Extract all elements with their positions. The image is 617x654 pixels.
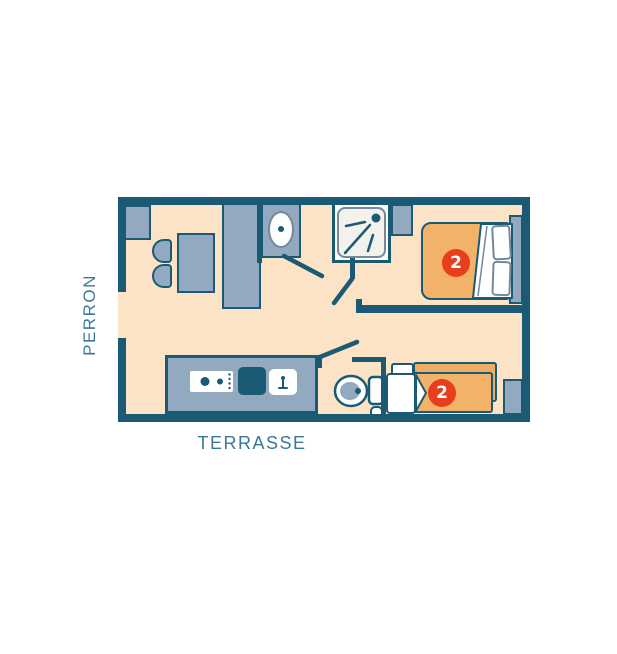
chair-icon [152,239,172,263]
kitchen-sink-icon [238,367,266,395]
wall-bedroom [356,305,522,313]
stove-icon [190,371,233,392]
wall-right [522,197,530,422]
washbasin-drain [278,226,284,232]
shower-tray [337,207,386,258]
wall-top [118,197,530,205]
pillow [386,373,416,414]
wall-left-lower [118,338,126,422]
label-terrasse: TERRASSE [178,433,326,459]
wall-shower-stub [350,258,355,279]
corner-cabinet-icon [122,205,151,240]
faucet-icon [269,369,297,395]
wall-bottom [118,414,530,422]
wall-kitchen-stub [317,355,322,368]
wardrobe-icon [222,202,261,309]
shower-head-glyph [339,209,388,260]
wall-bedroom-lip [356,299,362,313]
dining-table-icon [177,233,215,293]
entrance-door-opening [118,292,126,338]
toilet-icon [330,372,388,420]
capacity-badge-double: 2 [442,249,470,277]
label-perron: PERRON [80,260,106,370]
bedroom-wardrobe-icon [391,204,413,236]
capacity-badge-twin: 2 [428,379,456,407]
chair-icon [152,264,172,288]
pillow [491,225,512,261]
shower-icon [332,202,391,263]
wall-wc-right [381,357,386,414]
washbasin-icon [261,202,301,258]
bedside-cabinet-icon [503,379,523,415]
wall-bathroom [257,205,262,263]
pillow [491,261,511,297]
wall-left-upper [118,197,126,292]
kitchen-counter-icon [165,355,318,414]
floor-plan: 2 [0,0,617,654]
